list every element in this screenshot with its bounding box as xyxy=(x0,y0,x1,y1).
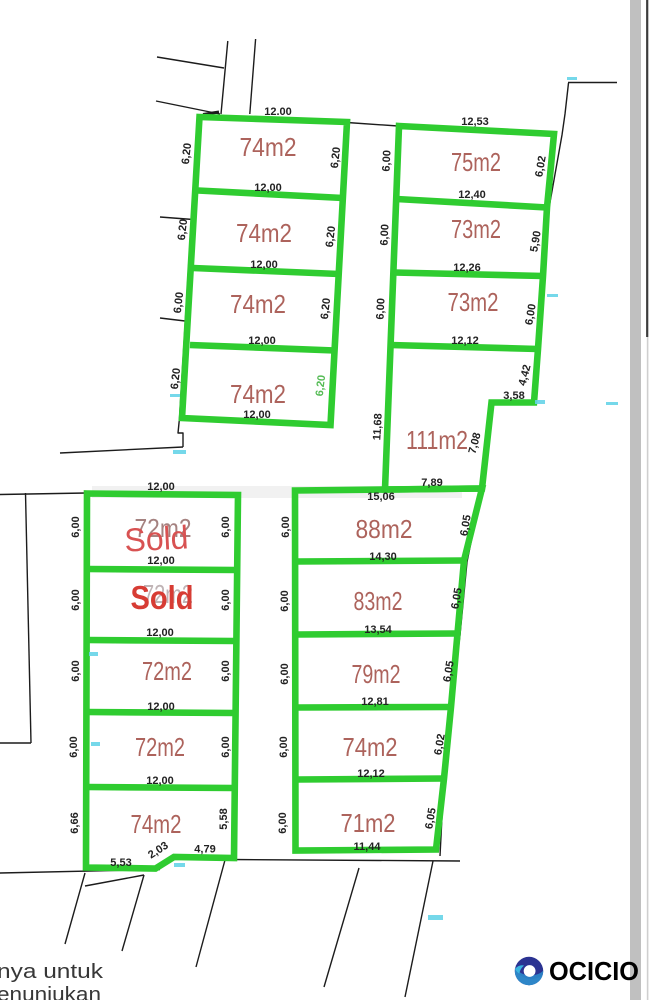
svg-text:6,66: 6,66 xyxy=(69,812,81,833)
svg-text:74m2: 74m2 xyxy=(131,809,182,839)
svg-text:73m2: 73m2 xyxy=(451,214,501,244)
svg-text:11,68: 11,68 xyxy=(371,413,384,441)
svg-text:83m2: 83m2 xyxy=(354,586,403,616)
svg-text:14,30: 14,30 xyxy=(369,551,397,563)
svg-text:74m2: 74m2 xyxy=(240,132,297,162)
svg-text:4,79: 4,79 xyxy=(194,844,215,856)
svg-text:12,12: 12,12 xyxy=(451,335,479,347)
svg-text:12,00: 12,00 xyxy=(146,627,174,639)
svg-text:6,00: 6,00 xyxy=(280,516,292,537)
svg-text:12,40: 12,40 xyxy=(458,189,486,201)
svg-text:12,00: 12,00 xyxy=(147,701,175,713)
svg-text:Sold: Sold xyxy=(131,579,194,616)
svg-text:6,00: 6,00 xyxy=(279,663,291,684)
svg-text:74m2: 74m2 xyxy=(236,218,292,248)
svg-text:6,00: 6,00 xyxy=(220,516,232,537)
svg-text:6,00: 6,00 xyxy=(380,150,393,172)
svg-text:72m2: 72m2 xyxy=(135,732,185,762)
svg-text:nya untuk: nya untuk xyxy=(0,961,104,983)
svg-text:5,53: 5,53 xyxy=(110,857,131,869)
svg-text:6,00: 6,00 xyxy=(70,660,82,681)
svg-text:12.00: 12.00 xyxy=(264,106,292,118)
svg-text:72m2: 72m2 xyxy=(142,656,192,686)
svg-text:13,54: 13,54 xyxy=(364,624,392,636)
svg-text:74m2: 74m2 xyxy=(230,379,286,409)
svg-text:75m2: 75m2 xyxy=(451,147,501,177)
svg-text:71m2: 71m2 xyxy=(341,808,396,838)
svg-text:12,00: 12,00 xyxy=(146,775,174,787)
svg-text:12,00: 12,00 xyxy=(254,182,282,194)
svg-text:6,00: 6,00 xyxy=(278,736,290,757)
svg-text:12,26: 12,26 xyxy=(453,262,481,274)
svg-text:enunjukan: enunjukan xyxy=(0,984,101,1000)
svg-text:15,06: 15,06 xyxy=(367,491,395,503)
svg-text:5,58: 5,58 xyxy=(218,808,230,829)
svg-text:12,00: 12,00 xyxy=(147,555,175,567)
svg-text:3,58: 3,58 xyxy=(503,390,524,402)
svg-text:12,00: 12,00 xyxy=(248,335,276,347)
svg-text:6,00: 6,00 xyxy=(220,589,232,610)
svg-text:6,00: 6,00 xyxy=(220,736,232,757)
svg-text:OCICIO: OCICIO xyxy=(549,956,639,986)
svg-text:12,12: 12,12 xyxy=(357,768,385,780)
svg-text:Sold: Sold xyxy=(123,518,189,558)
svg-text:88m2: 88m2 xyxy=(356,514,413,544)
svg-text:73m2: 73m2 xyxy=(448,287,499,317)
svg-text:12,81: 12,81 xyxy=(361,696,389,708)
svg-text:6,00: 6,00 xyxy=(277,812,289,833)
svg-text:6,00: 6,00 xyxy=(374,298,387,320)
svg-text:111m2: 111m2 xyxy=(406,425,468,455)
svg-text:12,53: 12,53 xyxy=(461,116,489,128)
svg-text:6,00: 6,00 xyxy=(70,516,82,537)
svg-text:6,00: 6,00 xyxy=(279,590,291,611)
svg-text:6,00: 6,00 xyxy=(68,736,80,757)
svg-text:6,00: 6,00 xyxy=(220,660,232,681)
svg-text:12,00: 12,00 xyxy=(250,259,278,271)
svg-text:74m2: 74m2 xyxy=(343,732,398,762)
svg-text:6,00: 6,00 xyxy=(378,224,391,246)
svg-text:12,00: 12,00 xyxy=(147,481,175,493)
svg-text:6,00: 6,00 xyxy=(70,589,82,610)
svg-text:79m2: 79m2 xyxy=(352,659,401,689)
svg-text:74m2: 74m2 xyxy=(230,289,286,319)
svg-text:12,00: 12,00 xyxy=(243,409,271,421)
svg-text:7,89: 7,89 xyxy=(421,477,442,489)
svg-text:11,44: 11,44 xyxy=(354,841,382,853)
